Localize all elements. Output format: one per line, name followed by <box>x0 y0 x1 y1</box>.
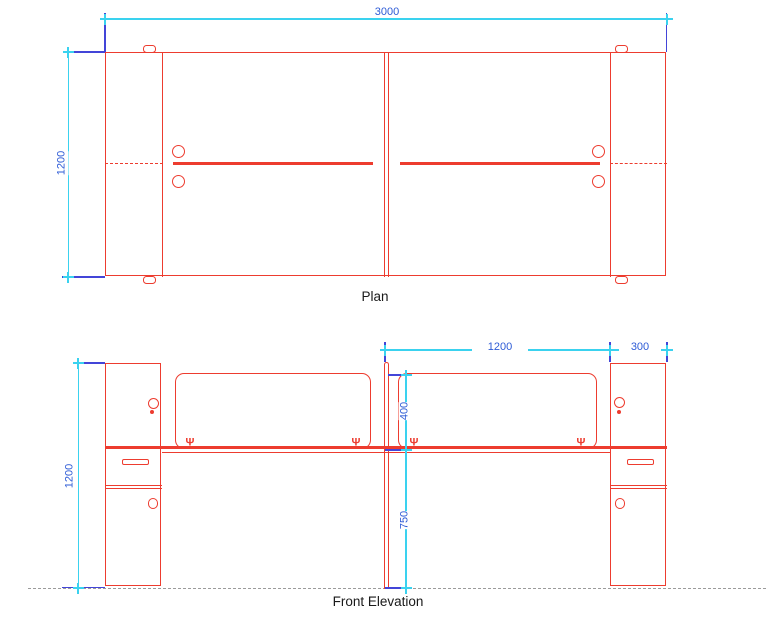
dim-value: 400 <box>399 402 412 420</box>
plan-right-panel-divider <box>610 52 611 277</box>
screen-clamp-icon: Ψ <box>186 438 195 448</box>
dim-tick-icon <box>73 358 84 369</box>
grommet-top-right <box>615 45 628 53</box>
grommet-top-left <box>143 45 156 53</box>
elevation-title: Front Elevation <box>308 594 448 609</box>
dim-tick-icon <box>662 14 673 25</box>
right-drawer-handle <box>627 459 654 465</box>
plan-right-screen-line <box>400 162 600 165</box>
left-pedestal <box>105 363 161 586</box>
dim-tick-icon <box>100 14 111 25</box>
screen-clamp-icon: Ψ <box>577 438 586 448</box>
dim-tick-icon <box>380 345 391 356</box>
dim-value: 1200 <box>472 341 528 353</box>
grommet-bottom-right <box>615 276 628 284</box>
grommet-bottom-left <box>143 276 156 284</box>
cad-drawing-sheet: 3000 1200 Plan <box>0 0 768 618</box>
dim-tick-icon <box>401 583 412 594</box>
dimension-line <box>105 18 667 19</box>
plan-left-lower-circle <box>172 175 185 188</box>
dim-value: 3000 <box>359 6 415 18</box>
plan-right-lower-circle <box>592 175 605 188</box>
dim-value: 750 <box>399 511 412 529</box>
plan-center-partition-line-2 <box>388 52 389 277</box>
plan-left-panel-divider <box>162 52 163 277</box>
plan-right-hidden-line <box>610 163 667 164</box>
dim-tick-icon <box>73 583 84 594</box>
plan-title: Plan <box>325 289 425 304</box>
dim-tick-icon <box>662 345 673 356</box>
left-pedestal-lock-dot <box>150 410 154 414</box>
dim-tick-icon <box>63 47 74 58</box>
extension-line <box>62 587 105 588</box>
right-drawer-bottom-line-1 <box>610 485 667 486</box>
plan-left-screen-line <box>173 162 373 165</box>
left-drawer-bottom-line-1 <box>105 485 162 486</box>
right-drawer-bottom-line-2 <box>610 488 667 489</box>
dim-value: 300 <box>619 341 661 353</box>
plan-left-upper-circle <box>172 145 185 158</box>
right-door-knob <box>615 498 626 509</box>
plan-right-upper-circle <box>592 145 605 158</box>
right-desk-screen <box>398 373 597 449</box>
dim-tick-icon <box>63 272 74 283</box>
dim-value: 1200 <box>64 464 77 488</box>
center-divider-post <box>384 362 389 589</box>
dim-tick-icon <box>401 370 412 381</box>
extension-line <box>68 51 105 52</box>
left-drawer-handle <box>122 459 149 465</box>
plan-center-partition-line-1 <box>384 52 385 277</box>
right-pedestal-lock-circle <box>614 397 625 408</box>
left-door-knob <box>148 498 159 509</box>
dimension-line <box>78 363 79 588</box>
right-pedestal-lock-dot <box>617 410 621 414</box>
screen-clamp-icon: Ψ <box>352 438 361 448</box>
dim-tick-icon <box>605 345 616 356</box>
dim-value: 1200 <box>56 151 69 175</box>
left-drawer-bottom-line-2 <box>105 488 162 489</box>
left-pedestal-lock-circle <box>148 398 159 409</box>
left-desk-screen <box>175 373 371 449</box>
plan-left-hidden-line <box>105 163 163 164</box>
